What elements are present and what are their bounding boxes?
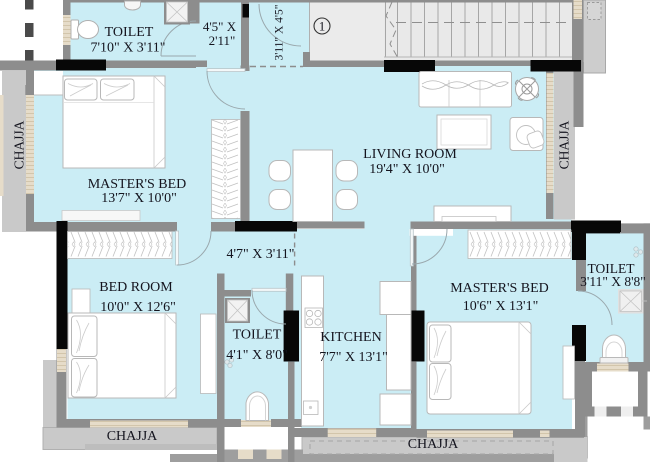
svg-text:CHAJJA: CHAJJA: [12, 120, 27, 169]
svg-text:10'6" X 13'1": 10'6" X 13'1": [463, 299, 539, 314]
svg-text:19'4" X 10'0": 19'4" X 10'0": [369, 162, 445, 177]
svg-text:CHAJJA: CHAJJA: [107, 429, 158, 444]
svg-text:10'0" X 12'6": 10'0" X 12'6": [100, 300, 176, 315]
svg-text:4'7" X 3'11": 4'7" X 3'11": [226, 247, 294, 262]
svg-text:7'10" X 3'11": 7'10" X 3'11": [90, 41, 165, 56]
svg-text:3'11" X 4'5": 3'11" X 4'5": [274, 5, 286, 61]
svg-text:4'5" X: 4'5" X: [203, 19, 237, 34]
svg-text:CHAJJA: CHAJJA: [408, 437, 459, 452]
svg-text:TOILET: TOILET: [233, 328, 282, 343]
svg-text:TOILET: TOILET: [105, 25, 154, 40]
svg-text:LIVING ROOM: LIVING ROOM: [363, 147, 457, 162]
svg-text:MASTER'S BED: MASTER'S BED: [450, 281, 549, 296]
svg-text:13'7" X 10'0": 13'7" X 10'0": [101, 191, 177, 206]
svg-text:1: 1: [319, 19, 326, 34]
svg-text:CHAJJA: CHAJJA: [557, 120, 572, 169]
svg-text:BED ROOM: BED ROOM: [99, 280, 173, 295]
svg-text:3'11" X 8'8": 3'11" X 8'8": [580, 274, 646, 289]
svg-text:MASTER'S BED: MASTER'S BED: [88, 177, 187, 192]
svg-text:4'1" X 8'0": 4'1" X 8'0": [226, 348, 288, 363]
svg-text:2'11": 2'11": [209, 33, 236, 48]
svg-text:7'7" X 13'1": 7'7" X 13'1": [319, 350, 388, 365]
svg-text:KITCHEN: KITCHEN: [320, 330, 381, 345]
